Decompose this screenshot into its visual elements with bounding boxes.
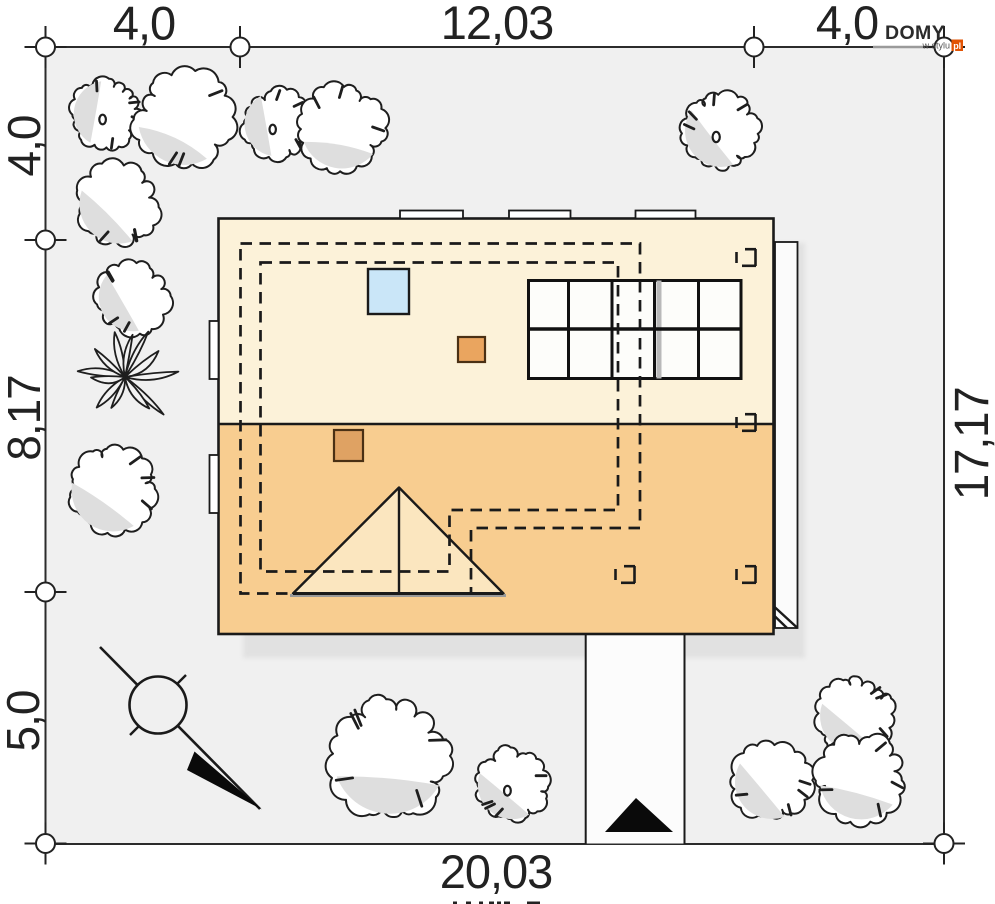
svg-text:20,03: 20,03 (440, 845, 553, 898)
svg-text:17,17: 17,17 (946, 388, 995, 501)
svg-text:4,0: 4,0 (816, 0, 878, 49)
svg-text:4,0: 4,0 (0, 116, 50, 177)
svg-text:12,03: 12,03 (441, 0, 554, 49)
svg-text:w stylu: w stylu (921, 41, 950, 51)
svg-text:pl: pl (953, 41, 961, 51)
svg-text:5,0: 5,0 (0, 691, 49, 752)
svg-text:4,0: 4,0 (113, 0, 175, 50)
svg-text:8,17: 8,17 (0, 375, 50, 461)
